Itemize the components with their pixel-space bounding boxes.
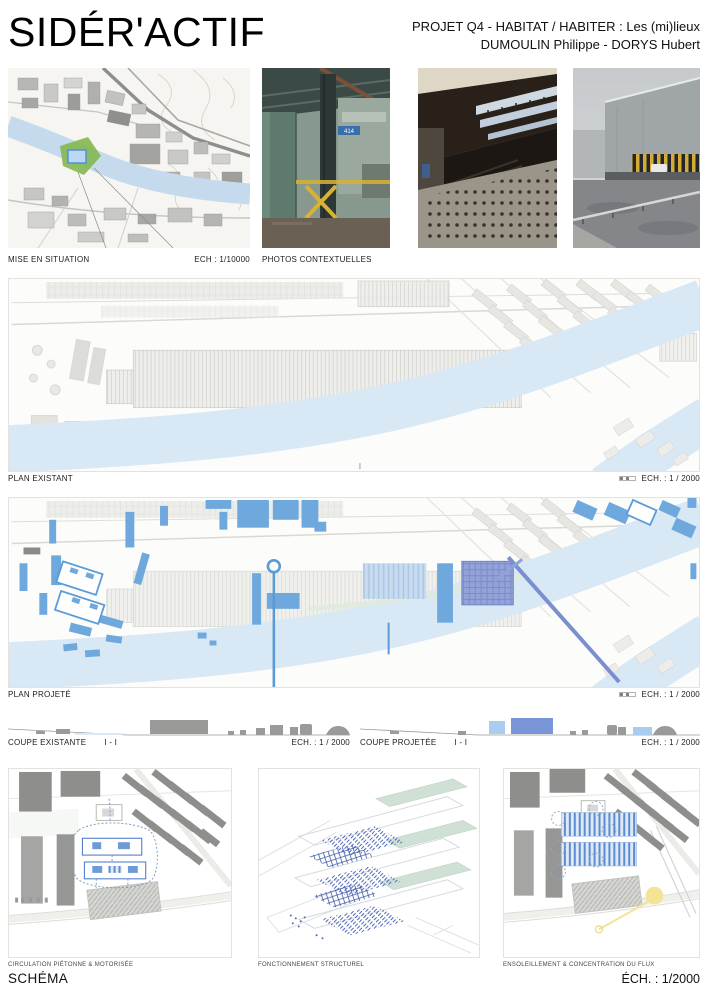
cp-lightblue-block <box>489 721 505 734</box>
coupe-projetee-label: COUPE PROJETÉE <box>360 738 436 747</box>
plan-projete-label: PLAN PROJETÉ <box>8 690 71 699</box>
pp-violet-block <box>462 561 513 605</box>
pp-dark-block <box>23 547 40 554</box>
schema-section-scale: ÉCH. : 1/2000 <box>621 972 700 986</box>
plan-existant-label: PLAN EXISTANT <box>8 474 73 483</box>
photo1-yellow-rail <box>296 180 390 184</box>
project-line2: DUMOULIN Philippe - DORYS Hubert <box>412 36 700 54</box>
scale-bar-icon <box>619 476 636 481</box>
board-title: SIDÉR'ACTIF <box>8 10 265 54</box>
schema-structure-caption: FONCTIONNEMENT STRUCTUREL <box>258 962 364 968</box>
coupe-existante-caption: COUPE EXISTANTEI - I ECH. : 1 / 2000 <box>8 738 350 747</box>
photo1-sign-number: 414 <box>344 129 355 135</box>
plan-projete-drawing <box>8 497 700 688</box>
plan-existant-caption: PLAN EXISTANT ECH. : 1 / 2000 <box>8 474 700 483</box>
pp-lightblue-slab <box>363 563 426 599</box>
schema-ensoleillement <box>503 768 700 958</box>
cp-blue-block <box>511 718 553 734</box>
photos-caption: PHOTOS CONTEXTUELLES <box>262 255 372 264</box>
coupe-existante-scale: ECH. : 1 / 2000 <box>292 738 350 747</box>
plan-projete-caption: PLAN PROJETÉ ECH. : 1 / 2000 <box>8 690 700 699</box>
plan-existant-drawing <box>8 278 700 472</box>
coupe-existante-label: COUPE EXISTANTE <box>8 738 86 747</box>
photo3-left-wing <box>573 130 605 178</box>
photo-industrial-interior-2 <box>418 68 557 248</box>
coupe-existante-mark: I - I <box>104 738 117 747</box>
situation-caption: MISE EN SITUATION ECH : 1/10000 <box>8 255 250 264</box>
presentation-board: SIDÉR'ACTIF PROJET Q4 - HABITAT / HABITE… <box>0 0 707 1000</box>
project-info: PROJET Q4 - HABITAT / HABITER : Les (mi)… <box>412 18 700 54</box>
photo-exterior-facade <box>573 68 700 248</box>
photo3-base-band <box>605 172 700 181</box>
coupe-projetee-mark: I - I <box>454 738 467 747</box>
coupe-existante-drawing <box>8 716 350 738</box>
schema-circulation <box>8 768 232 958</box>
schema-ensoleillement-caption: ENSOLEILLEMENT & CONCENTRATION DU FLUX <box>503 962 655 968</box>
schema-structure <box>258 768 480 958</box>
photo-industrial-interior-1: 414 <box>262 68 390 248</box>
schema-circulation-caption: CIRCULATION PIÉTONNE & MOTORISÉE <box>8 962 133 968</box>
schema-section-title: SCHÉMA <box>8 971 68 986</box>
scale-bar-icon <box>619 692 636 697</box>
coupe-projetee-caption: COUPE PROJETÉEI - I ECH. : 1 / 2000 <box>360 738 700 747</box>
coupe-projetee-scale: ECH. : 1 / 2000 <box>642 738 700 747</box>
plan-existant-scale: ECH. : 1 / 2000 <box>642 474 700 483</box>
plan-projete-scale: ECH. : 1 / 2000 <box>642 690 700 699</box>
project-line1: PROJET Q4 - HABITAT / HABITER : Les (mi)… <box>412 18 700 36</box>
situation-map <box>8 68 250 248</box>
photo3-truck <box>651 164 667 172</box>
situation-label: MISE EN SITUATION <box>8 255 89 264</box>
coupe-projetee-drawing <box>360 716 700 738</box>
situation-scale: ECH : 1/10000 <box>194 255 250 264</box>
